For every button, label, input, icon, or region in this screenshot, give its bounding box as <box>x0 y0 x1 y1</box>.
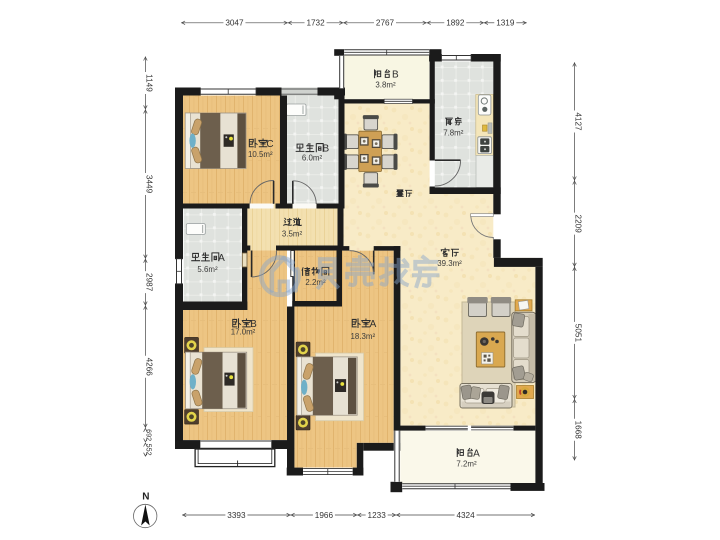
svg-text:1319: 1319 <box>496 19 515 28</box>
svg-text:552: 552 <box>145 444 154 456</box>
svg-text:17.0m²: 17.0m² <box>231 327 256 336</box>
svg-text:4127: 4127 <box>574 112 583 131</box>
svg-text:1966: 1966 <box>315 511 334 520</box>
svg-text:N: N <box>142 491 149 502</box>
svg-text:1149: 1149 <box>145 74 154 92</box>
svg-text:3393: 3393 <box>227 511 246 520</box>
svg-text:10.5m²: 10.5m² <box>248 150 273 159</box>
svg-text:4324: 4324 <box>456 511 475 520</box>
svg-text:3.5m²: 3.5m² <box>282 229 303 238</box>
svg-text:B: B <box>392 70 399 81</box>
svg-text:3.8m²: 3.8m² <box>375 80 396 89</box>
svg-text:C: C <box>266 139 273 150</box>
svg-text:1668: 1668 <box>574 421 583 440</box>
svg-text:7.8m²: 7.8m² <box>443 128 464 137</box>
svg-text:2209: 2209 <box>574 215 583 234</box>
svg-text:B: B <box>322 144 329 155</box>
svg-text:692: 692 <box>145 429 154 441</box>
svg-text:3449: 3449 <box>145 175 154 194</box>
svg-text:2767: 2767 <box>376 19 395 28</box>
svg-text:A: A <box>370 319 377 330</box>
svg-text:1732: 1732 <box>306 19 325 28</box>
svg-text:2987: 2987 <box>145 273 154 292</box>
svg-text:1233: 1233 <box>368 511 387 520</box>
svg-text:5.6m²: 5.6m² <box>197 265 218 274</box>
svg-text:3047: 3047 <box>225 19 244 28</box>
svg-text:A: A <box>218 253 225 264</box>
svg-text:18.3m²: 18.3m² <box>351 332 376 341</box>
svg-text:5051: 5051 <box>574 324 583 343</box>
svg-text:7.2m²: 7.2m² <box>456 459 477 468</box>
svg-text:39.3m²: 39.3m² <box>437 259 462 268</box>
svg-text:6.0m²: 6.0m² <box>302 154 323 163</box>
svg-text:4266: 4266 <box>145 358 154 377</box>
svg-text:A: A <box>473 448 480 459</box>
svg-text:1892: 1892 <box>446 19 465 28</box>
